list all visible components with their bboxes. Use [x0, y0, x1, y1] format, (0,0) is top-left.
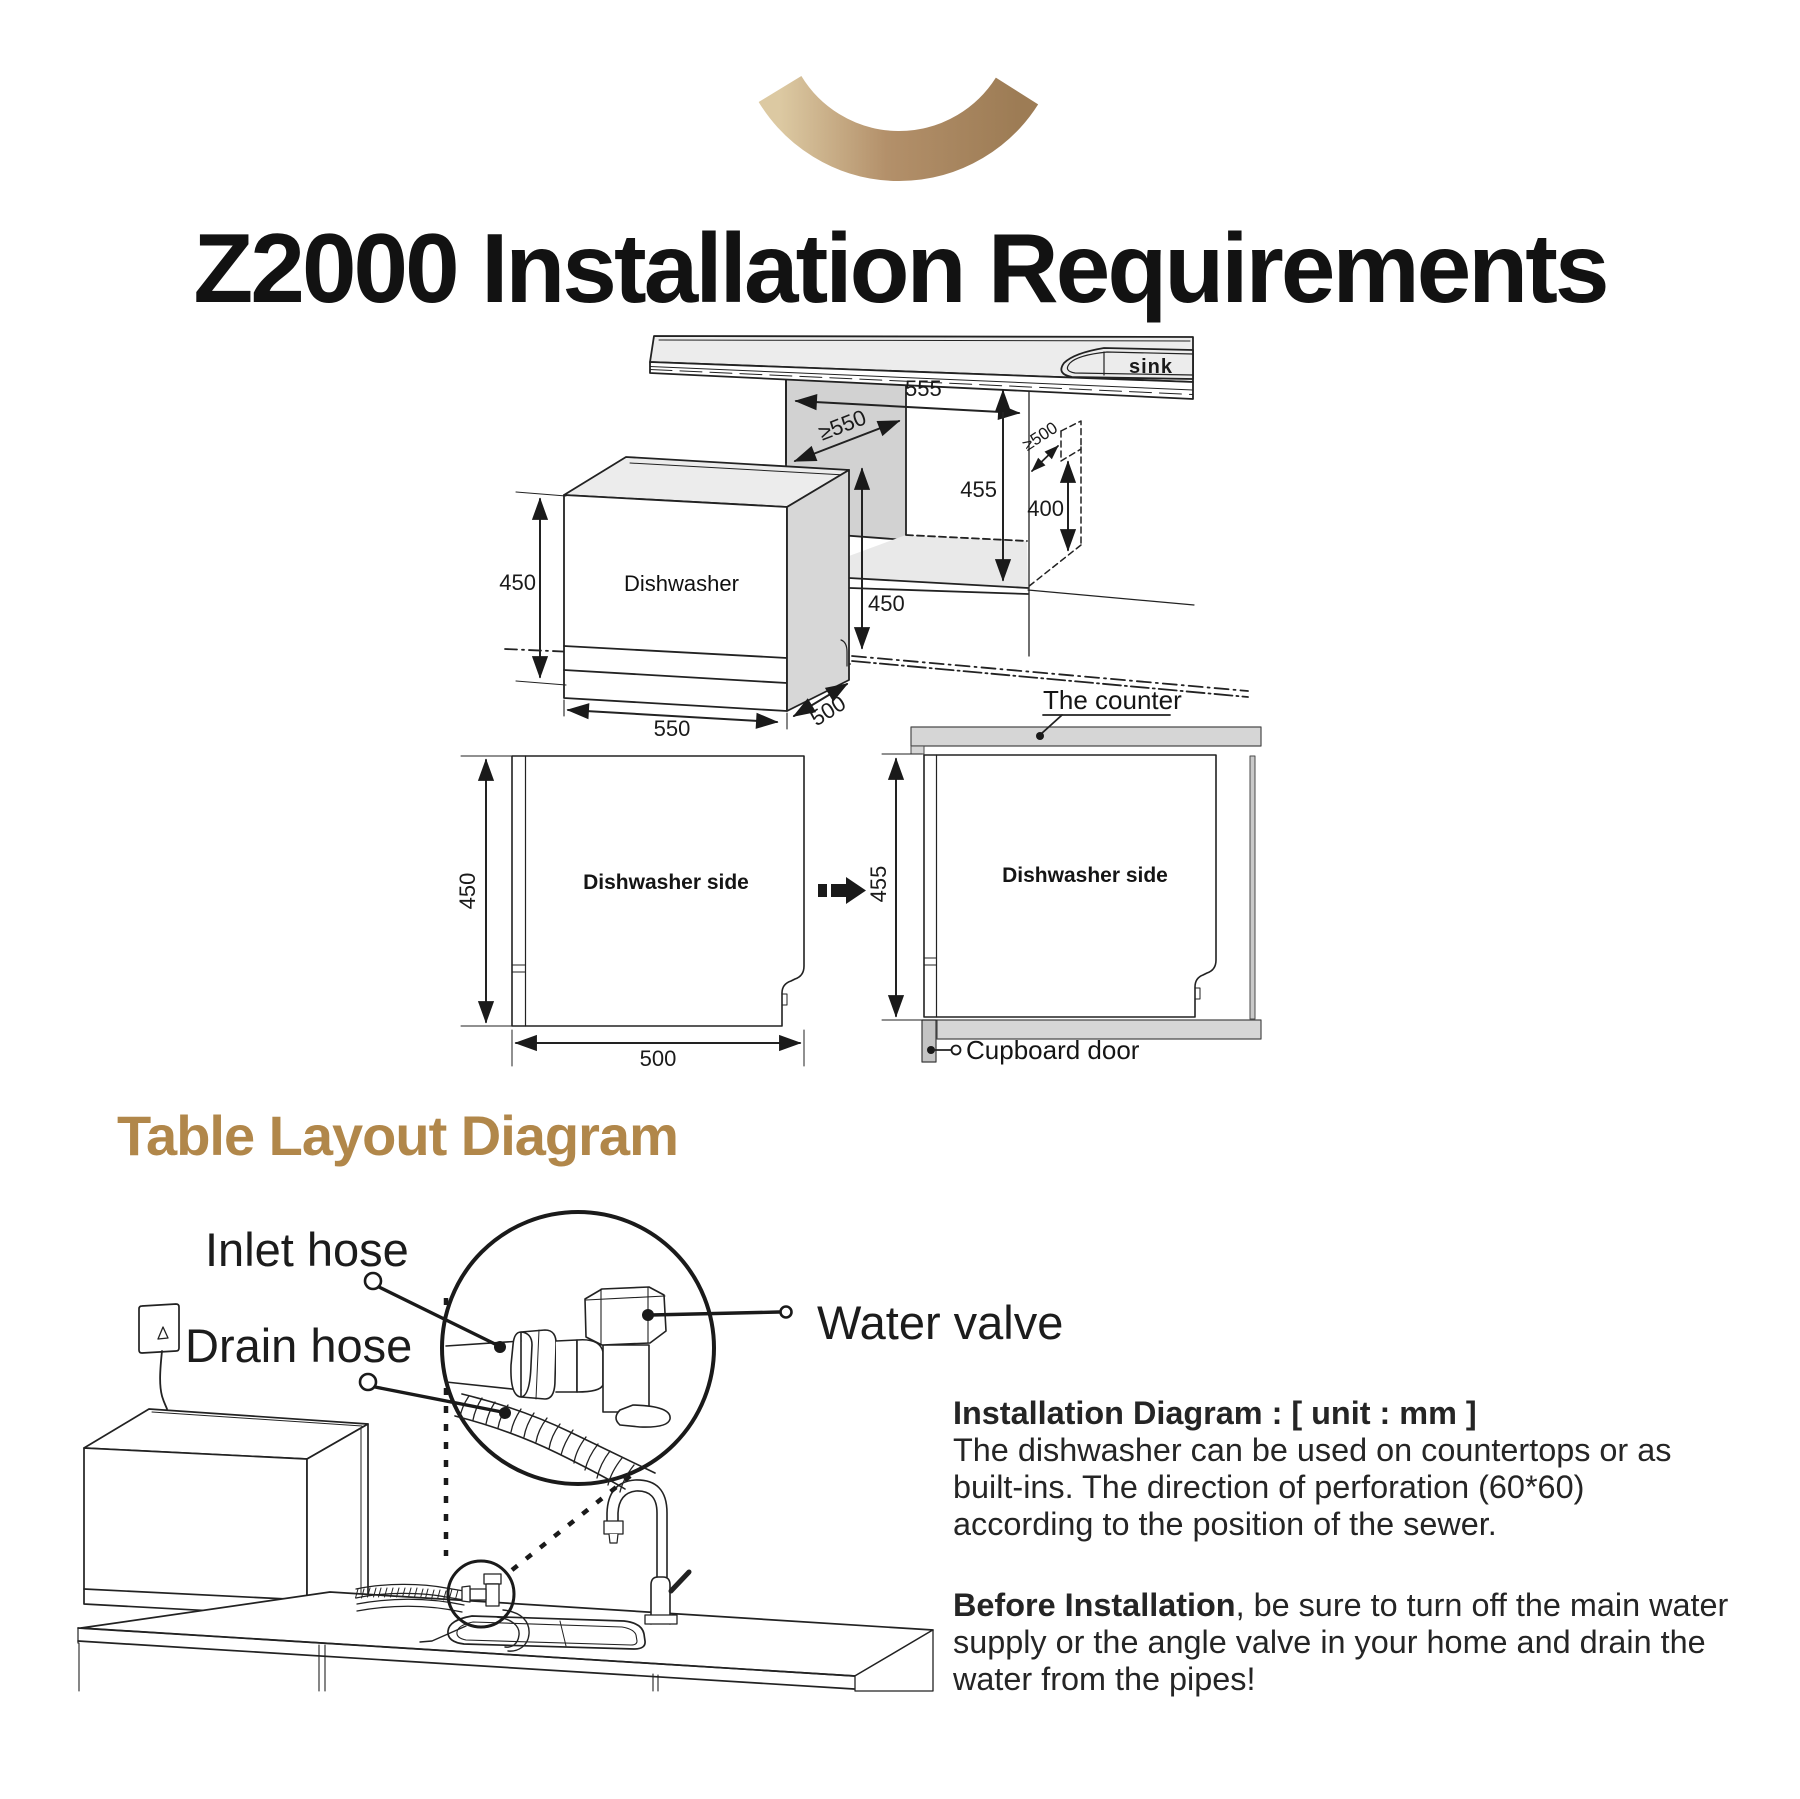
- svg-text:400: 400: [1027, 496, 1064, 521]
- svg-text:555: 555: [905, 376, 942, 401]
- svg-text:Dishwasher side: Dishwasher side: [583, 871, 749, 894]
- svg-text:450: 450: [455, 873, 480, 910]
- svg-text:450: 450: [868, 591, 905, 616]
- svg-text:450: 450: [499, 570, 536, 595]
- svg-text:455: 455: [866, 866, 891, 903]
- svg-text:The counter: The counter: [1043, 685, 1182, 715]
- svg-text:455: 455: [960, 477, 997, 502]
- svg-text:Dishwasher: Dishwasher: [624, 571, 739, 596]
- svg-text:sink: sink: [1129, 356, 1173, 378]
- svg-text:Cupboard door: Cupboard door: [966, 1035, 1140, 1065]
- svg-text:Dishwasher side: Dishwasher side: [1002, 864, 1168, 887]
- svg-text:500: 500: [640, 1046, 677, 1071]
- svg-text:550: 550: [654, 716, 691, 741]
